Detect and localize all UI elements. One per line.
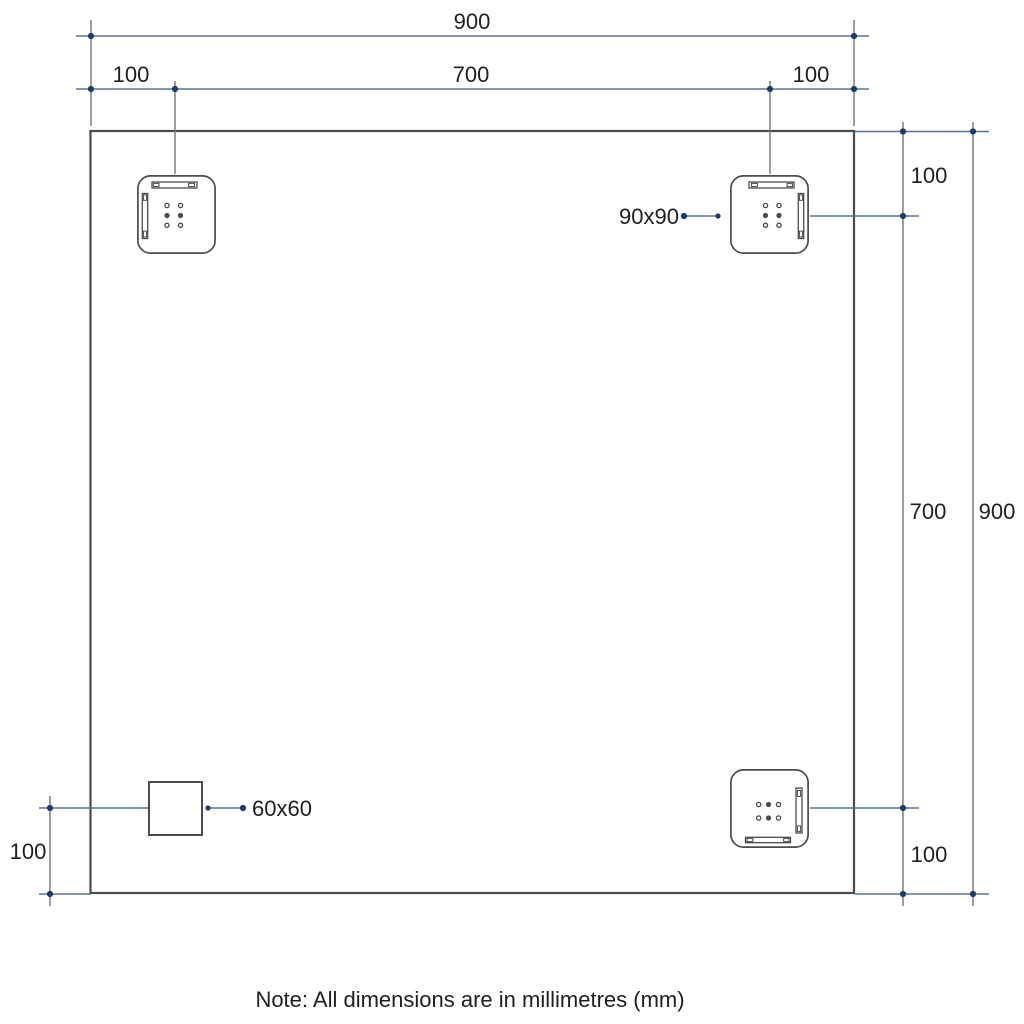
plate-bottom-left [149,782,202,835]
dimension-dot [715,213,720,218]
mirror-dimension-drawing: 900 100 700 100 100 700 900 100 100 90x9… [0,0,1024,1024]
dim-label-right-overall: 900 [979,499,1016,524]
dimension-dot [205,805,210,810]
dimension-dot [88,86,94,92]
callout-label-bracket: 90x90 [619,204,679,229]
bracket-top-left [138,176,215,253]
dimension-dot [172,86,178,92]
dim-label-top-right: 100 [793,62,830,87]
dimension-dot [851,33,857,39]
bracket-top-right [731,176,808,253]
dimension-dot [900,128,906,134]
dimension-dot [681,213,687,219]
dim-label-left-bottom: 100 [10,839,47,864]
dim-label-top-left: 100 [113,62,150,87]
dim-label-right-center: 700 [910,499,947,524]
dim-label-right-top: 100 [911,163,948,188]
dimension-dot [47,891,53,897]
dimension-dot [970,891,976,897]
dimension-dot [900,213,906,219]
dimension-dot [767,86,773,92]
dimension-dot [900,805,906,811]
drawing-canvas: 900 100 700 100 100 700 900 100 100 90x9… [0,0,1024,1024]
dimensions-note: Note: All dimensions are in millimetres … [255,987,684,1012]
dim-label-top-overall: 900 [454,9,491,34]
dim-label-right-bottom: 100 [911,842,948,867]
dimension-dot [240,805,246,811]
dimension-dot [88,33,94,39]
dimension-dot [47,805,53,811]
bracket-bottom-right [731,770,808,847]
dimension-dot [970,128,976,134]
dimension-dot [900,891,906,897]
callout-label-plate: 60x60 [252,796,312,821]
dimension-dot [851,86,857,92]
dim-label-top-center: 700 [453,62,490,87]
